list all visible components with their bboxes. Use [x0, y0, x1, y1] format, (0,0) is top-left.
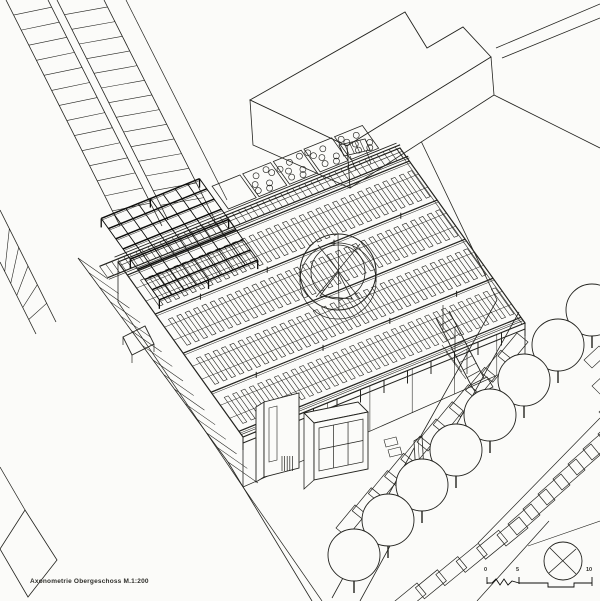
- parking-strips-northwest: [0, 0, 227, 334]
- site-axonometric-drawing: [0, 0, 600, 601]
- scale-label-5: 5: [516, 567, 519, 573]
- drawing-caption: Axonometrie Obergeschoss M.1:200: [30, 578, 149, 585]
- tree-row: [328, 284, 600, 593]
- tree: [328, 529, 380, 593]
- scale-label-0: 0: [484, 567, 487, 573]
- scale-bar: [487, 577, 592, 587]
- drawing-sheet: Axonometrie Obergeschoss M.1:200 0 5 10: [0, 0, 600, 601]
- crossed-tree-symbol: [544, 542, 582, 580]
- scale-label-10: 10: [586, 567, 592, 573]
